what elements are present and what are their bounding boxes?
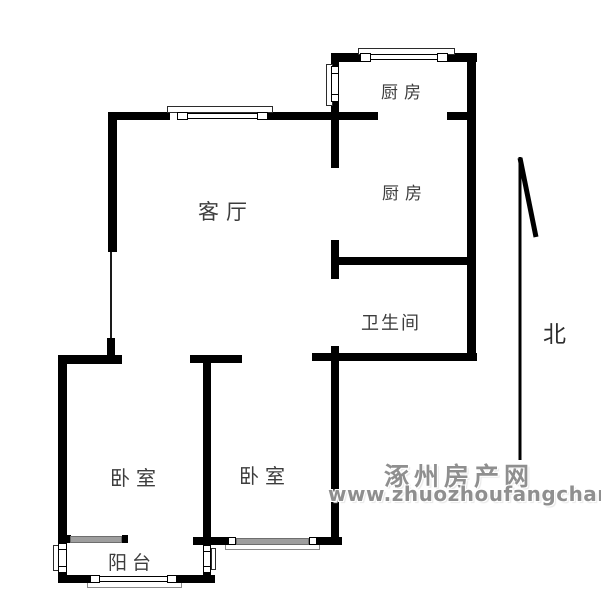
window-kitchen-top-glass <box>371 54 437 60</box>
window-kitchen-top-cap-right <box>437 53 448 62</box>
window-kitchen-top-cap-left <box>360 53 371 62</box>
wall-living-left <box>108 112 117 252</box>
window-living-top-cap-left <box>177 112 188 120</box>
north-arrow-icon <box>505 145 550 470</box>
wall-bedroom2-bottom-b <box>317 537 342 545</box>
wall-living-top-a <box>108 112 170 120</box>
floorplan-canvas: 厨房 厨房 客厅 卫生间 卧室 卧室 阳台 北 涿州房产网 www.zhuozh… <box>0 0 601 600</box>
window-balcony-left-cap-bottom <box>58 566 67 573</box>
wall-bedroom-divider <box>203 355 211 545</box>
wall-bedroom2-bottom-a <box>193 537 228 545</box>
window-balcony-bottom-glass <box>100 576 167 582</box>
wall-bedroom2-right <box>331 360 339 537</box>
window-bedroom2-cap-left <box>228 537 236 545</box>
watermark-site-url: www.zhuozhoufangchan.com <box>328 482 601 506</box>
wall-living-top-b <box>268 112 378 120</box>
wall-balcony-bottom-b <box>177 575 215 583</box>
room-label-bedroom-left: 卧室 <box>110 462 162 491</box>
room-label-kitchen-mid: 厨房 <box>382 179 428 204</box>
window-balcony-bottom-cap-left <box>90 575 100 583</box>
window-kitchen-left-glass <box>331 74 339 94</box>
wall-kitchen2-bath-divider <box>339 257 467 265</box>
wall-right-exterior <box>467 53 476 360</box>
window-bedroom2-gray <box>236 538 309 545</box>
opening-line-living-left <box>110 252 112 338</box>
window-kitchen-left-cap-top <box>331 66 339 74</box>
window-living-top-cap-right <box>257 112 268 120</box>
window-balcony-right-glass <box>203 552 211 566</box>
north-label: 北 <box>543 315 566 349</box>
window-bedroom1-balcony-gray <box>70 536 122 543</box>
wall-living-top-c <box>447 112 467 120</box>
wall-bedroom1-top <box>58 355 122 364</box>
window-balcony-bottom-sill <box>87 583 182 588</box>
room-label-kitchen-top: 厨房 <box>381 78 427 103</box>
wall-kitchen2-left-upper <box>331 120 339 168</box>
room-label-bedroom-right: 卧室 <box>239 460 291 489</box>
window-balcony-left-cap-top <box>58 543 67 550</box>
window-balcony-bottom-cap-right <box>167 575 177 583</box>
window-bedroom2-cap-right <box>309 537 317 545</box>
window-balcony-right-cap-bottom <box>203 566 211 573</box>
wall-bath-left-upper <box>331 265 339 279</box>
room-label-living: 客厅 <box>198 196 254 226</box>
room-label-balcony: 阳台 <box>108 548 156 575</box>
wall-balcony-bottom-a <box>58 575 90 583</box>
wall-bedroom1-balcony-b <box>122 535 128 543</box>
wall-bedroom2-top <box>190 355 242 363</box>
wall-living-left-stub <box>107 338 115 356</box>
window-bedroom2-sill <box>225 545 320 550</box>
room-label-bathroom: 卫生间 <box>361 309 421 335</box>
wall-bedroom1-left <box>58 355 67 543</box>
window-living-top-glass <box>188 113 257 119</box>
wall-kitchen2-left-lower <box>331 240 339 265</box>
window-balcony-right-frame <box>211 548 216 570</box>
window-balcony-right-cap-top <box>203 545 211 552</box>
window-balcony-left-glass <box>58 550 67 566</box>
window-kitchen-left-cap-bottom <box>331 94 339 102</box>
